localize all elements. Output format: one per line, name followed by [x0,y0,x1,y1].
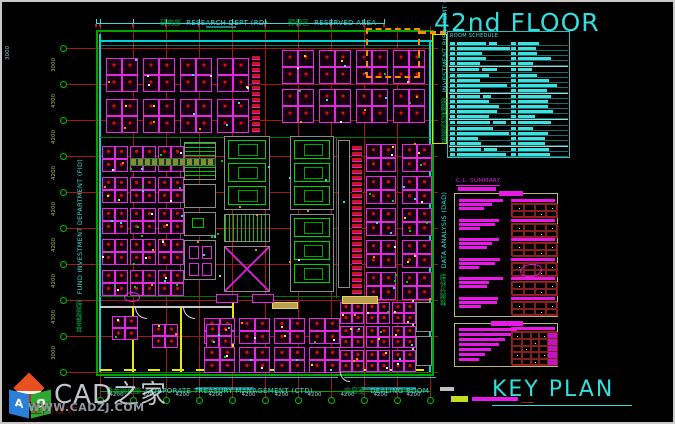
desk [381,158,396,172]
cad-speck [238,102,240,104]
cad-speck [133,263,135,265]
workstation-cluster [366,144,394,170]
schedule-entry-bar [511,52,516,55]
desk [325,318,341,331]
core-service-strip [338,140,350,288]
core-room-fixture [192,218,204,228]
summary-entry-bar [459,348,491,351]
desk [180,116,196,133]
desk [378,313,390,324]
desk [356,89,372,106]
gray-dash-mark [440,387,454,391]
desk [143,58,159,75]
schedule-entry-bar [518,115,535,118]
desk [158,283,171,296]
schedule-entry-bar [518,100,548,103]
cad-speck [239,206,241,208]
desk [217,99,233,116]
cell-dot [541,312,542,313]
desk [130,190,143,203]
cad-speck [117,289,119,291]
dept-label-reserved: 预留区 RESERVED AREA [288,10,376,29]
desk [392,337,404,348]
desk [196,75,212,92]
schedule-entry-bar [511,121,516,124]
workstation-cluster [393,89,423,121]
summary-cell [545,308,558,316]
dimension-number: 4200 [51,199,57,219]
elevator-car-inner [304,245,323,257]
schedule-entry-bar [518,110,553,113]
desk [239,347,255,360]
cad-speck [394,311,396,313]
summary-entry-bar [511,219,555,222]
schedule-entry-bar [450,153,455,156]
summary-entry-bar [459,219,499,222]
cad-speck [104,186,106,188]
cad-speck [175,333,177,335]
desk [340,361,352,372]
cad-speck [107,195,109,197]
schedule-entry-bar [493,121,506,124]
desk [122,116,138,133]
summary-entry-bar [459,227,480,230]
cad-speck [228,327,230,329]
workstation-cluster [130,239,154,263]
cad-speck [141,235,143,237]
cad-speck [406,281,408,283]
desk [340,337,352,348]
cad-speck [226,355,228,357]
desk [143,99,159,116]
schedule-entry-bar [518,42,539,45]
summary-entry-bar [459,262,495,265]
workstation-cluster [274,318,303,342]
elevator-car-inner [304,222,323,234]
workstation-cluster [102,177,126,201]
desk [319,106,335,123]
cell-dot [552,306,553,307]
desk [372,106,388,123]
schedule-entry-bar [518,121,551,124]
room-schedule-table: ROOM SCHEDULE [447,31,570,158]
summary-entry-bar [459,333,511,336]
cad-speck [137,226,139,228]
cad-speck [153,121,155,123]
workstation-cluster [366,302,388,322]
cad-speck [203,254,205,256]
cell-dot [541,214,542,215]
cad-speck [284,335,286,337]
desk [366,240,381,254]
cell-dot [519,286,520,287]
schedule-entry-bar [511,68,516,71]
dimension-number: 3000 [51,343,57,363]
toilet-fixture [202,263,212,276]
toilet-block [184,240,216,280]
cell-dot [519,306,520,307]
desk [381,208,396,222]
schedule-entry-bar [518,153,550,156]
schedule-entry-bar [457,132,509,135]
summary-entry-bar [511,327,555,330]
dept-label-fund-investment: 基金投资部 FUND INVESTMENT DEPARTMENT (FID) [70,200,89,332]
desk [417,254,432,268]
cad-speck [114,285,116,287]
cad-speck [386,367,388,369]
desk [158,190,171,203]
workstation-cluster [340,350,362,370]
summary-cell [547,358,558,366]
desk [404,361,416,372]
summary-cell [545,230,558,238]
desk [402,208,417,222]
desk [404,313,416,324]
dimension-tick-red [383,24,385,27]
desk [404,326,416,337]
workstation-cluster [180,58,210,90]
cad-speck [411,344,413,346]
desk [335,89,351,106]
cad-speck [125,105,127,107]
dept-label-irm: 投资风险管理部 INVESTMENT RISK MGMT (IRM) [435,37,454,143]
workstation-cluster [392,350,414,370]
elevator-car-inner [304,268,323,280]
desk [402,272,417,286]
cad-speck [358,328,360,330]
cad-speck [429,298,431,300]
desk [402,176,417,190]
workstation-cluster [130,270,154,294]
dimension-number: 4200 [51,271,57,291]
schedule-entry-bar [457,79,480,82]
schedule-entry-bar [518,84,557,87]
desk [239,318,255,331]
schedule-entry-bar [511,42,516,45]
schedule-entry-bar [457,57,486,60]
toilet-fixture [189,246,199,259]
desk [217,116,233,133]
cad-speck [147,75,149,77]
desk [158,208,171,221]
cell-dot [544,355,545,356]
grid-bubble [394,397,401,404]
cad-speck [299,90,301,92]
desk [366,208,381,222]
desk [381,176,396,190]
desk [102,270,115,283]
desk [402,286,417,300]
desk [366,176,381,190]
summary-cell [545,210,558,218]
curtain-wall-left [99,34,101,372]
cell-dot [517,336,518,337]
workstation-cluster [402,144,430,170]
desk [106,116,122,133]
cell-dot [517,355,518,356]
desk [158,252,171,265]
desk [378,350,390,361]
summary-entry-bar [459,343,499,346]
desk [115,270,128,283]
summary-entry-bar [459,358,479,361]
desk [233,116,249,133]
desk [404,337,416,348]
summary-grid [511,281,557,295]
desk [366,144,381,158]
desk [115,239,128,252]
elevator-car [294,241,330,260]
desk [417,190,432,204]
desk [381,190,396,204]
cad-speck [145,257,147,259]
summary-entry-bar [459,199,503,202]
desk [255,331,271,344]
workstation-cluster [366,272,394,298]
cad-speck [416,96,418,98]
summary-entry-bar [459,277,503,280]
cad-speck [281,326,283,328]
cad-speck [261,367,263,369]
schedule-entry-bar [483,95,491,98]
schedule-entry-bar [511,79,516,82]
cad-speck [404,217,406,219]
schedule-entry-bar [457,89,480,92]
desk [404,302,416,313]
schedule-entry-bar [489,42,497,45]
desk [402,144,417,158]
cad-speck [180,152,182,154]
elevator-car-inner [238,144,258,156]
cad-speck [108,81,110,83]
grid-bubble [60,153,67,160]
desk [115,252,128,265]
desk [309,360,325,373]
cad-speck [330,369,332,371]
cad-speck [122,162,124,164]
cad-speck [241,322,243,324]
desk [102,283,115,296]
desk [239,331,255,344]
grid-bubble [60,81,67,88]
desk [125,328,138,340]
schedule-entry-bar [518,62,533,65]
summary-entry-bar [459,305,481,308]
cad-speck [255,249,257,251]
workstation-cluster [102,146,126,170]
legend-swatch [451,396,468,402]
cad-speck [414,198,416,200]
schedule-entry-bar [457,121,490,124]
summary-grid [511,223,557,237]
cell-dot [519,267,520,268]
desk [325,360,341,373]
desk [409,106,425,123]
dad-cn: 数据分析部 [440,274,448,307]
dimension-number: 3000 [51,55,57,75]
desk [393,106,409,123]
elevator-car-inner [304,167,323,179]
desk [274,360,290,373]
cad-speck [199,128,201,130]
cad-speck [102,256,104,258]
schedule-entry-bar [518,74,537,77]
cad-speck [421,201,423,203]
desk [366,222,381,236]
cad-speck [409,230,411,232]
cad-speck [409,102,411,104]
elevator-car [294,264,330,283]
desk [158,177,171,190]
summary-entry-bar [459,242,492,245]
schedule-entry-bar [518,137,545,140]
cell-dot [544,336,545,337]
cad-speck [342,314,344,316]
elevator-car [294,140,330,159]
cad-speck [420,164,422,166]
schedule-entry-bar [511,127,516,130]
schedule-entry-bar [511,142,516,145]
cad-speck [325,179,327,181]
cell-dot [541,253,542,254]
round-table [124,292,140,302]
schedule-entry-bar [457,62,480,65]
desk [309,318,325,331]
cell-dot [526,349,527,350]
desk [366,361,378,372]
cad-speck [120,222,122,224]
cad-speck [304,55,306,57]
desk [233,99,249,116]
cell-dot [552,208,553,209]
schedule-entry-bar [511,57,516,60]
desk [171,239,184,252]
schedule-entry-bar [511,105,516,108]
dimension-number: 4200 [51,163,57,183]
desk [233,75,249,92]
desk [255,347,271,360]
grid-bubble [295,397,302,404]
elevator-car-inner [238,167,258,179]
cell-dot [552,247,553,248]
desk [122,99,138,116]
desk [171,270,184,283]
desk [143,177,156,190]
cad-speck [393,287,395,289]
schedule-entry-bar [457,84,507,87]
summary-cell [545,288,558,296]
schedule-entry-bar [511,132,516,135]
cad-speck [176,284,178,286]
room-schedule-rows [449,41,568,157]
schedule-row [449,152,568,157]
grid-bubble [60,189,67,196]
office-partition [180,306,182,372]
desk [106,58,122,75]
workstation-cluster [366,326,388,346]
schedule-entry-bar [511,110,516,113]
schedule-entry-bar [457,153,506,156]
cad-speck [378,338,380,340]
schedule-entry-bar [518,95,551,98]
schedule-entry-bar [457,47,510,50]
workstation-cluster [106,58,136,90]
desk [143,221,156,234]
cad-speck [407,321,409,323]
desk [274,347,290,360]
watermark: A D 室内设计 CAD之家 WWW.CADZJ.COM [6,374,226,420]
cad-speck [356,358,358,360]
summary-entry-bar [459,353,485,356]
workstation-cluster [356,89,386,121]
legend-red-line [521,402,534,403]
cad-speck [297,67,299,69]
workstation-cluster [392,326,414,346]
schedule-entry-bar [457,142,481,145]
desk [309,347,325,360]
cell-dot [541,234,542,235]
desk [274,331,290,344]
workstation-cluster [402,272,430,298]
desk [417,208,432,222]
dept-label-irm-box: 投资风险管理部 INVESTMENT RISK MGMT (IRM) [432,34,447,144]
desk [171,177,184,190]
elevator-car [294,186,330,205]
summary-table-1 [454,193,558,317]
cad-speck [142,190,144,192]
workstation-cluster [366,240,394,266]
summary-title: C.L. SUMMARY [456,178,501,184]
desk [217,58,233,75]
schedule-entry-bar [457,42,486,45]
desk [106,75,122,92]
summary-grid [511,331,557,365]
dimension-number: 4300 [51,91,57,111]
cad-speck [211,236,213,238]
meeting-table [252,294,274,303]
office-front-wall [100,306,234,308]
elevator-car-inner [304,144,323,156]
summary-entry-bar [459,328,517,331]
cad-speck [158,325,160,327]
desk [196,99,212,116]
workstation-cluster [340,302,362,322]
elevator-car [228,163,266,182]
cad-speck [399,358,401,360]
desk [404,350,416,361]
desk [159,99,175,116]
grid-bubble [60,333,67,340]
cad-speck [395,274,397,276]
desk [158,239,171,252]
desk [122,75,138,92]
desk [171,221,184,234]
dealing-en: DEALING ROOM [370,387,429,395]
cad-speck [367,312,369,314]
desk [298,67,314,84]
desk [417,222,432,236]
core-room [184,184,216,208]
cad-speck [340,121,342,123]
desk [159,75,175,92]
conference-table [342,296,378,304]
schedule-entry-bar [457,110,497,113]
cad-speck [124,127,126,129]
schedule-entry-bar [511,89,516,92]
desk [417,272,432,286]
desk [282,106,298,123]
desk [309,331,325,344]
